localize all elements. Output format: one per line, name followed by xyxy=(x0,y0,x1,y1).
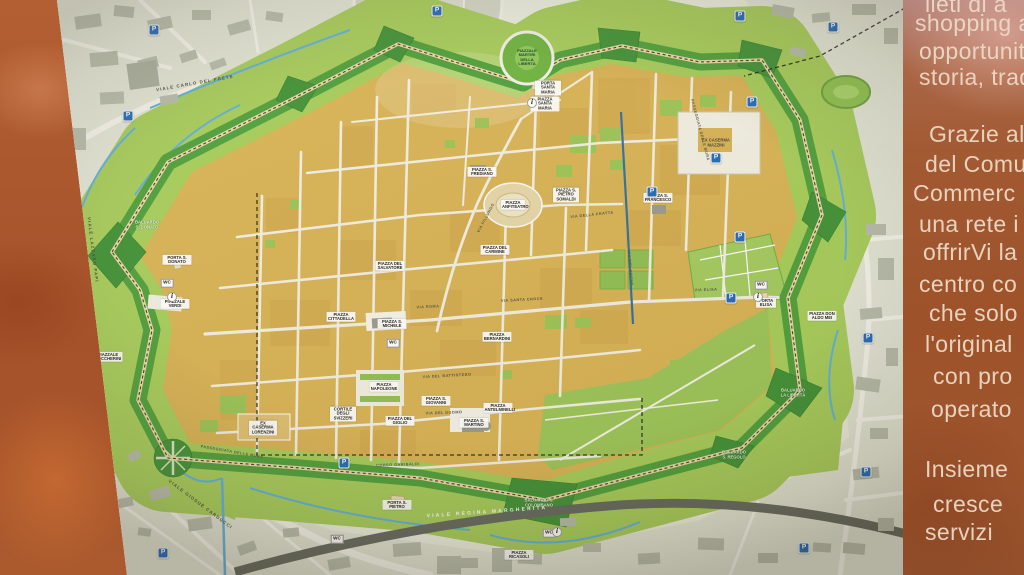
map-label: PIAZZA DEL SALVATORE xyxy=(376,261,405,271)
map-label: PIAZZA ANTELMINELLI xyxy=(484,403,513,413)
map-label: PIAZZA DON ALDO MEI xyxy=(808,311,837,321)
map-label: PIAZZA S. MICHELE xyxy=(378,319,407,329)
map-label: PIAZZA DEL CARMINE xyxy=(481,245,510,255)
map-label: PIAZZALE VERDI xyxy=(161,299,190,309)
parking-icon: P xyxy=(861,467,872,478)
map-label: EX CASERMA LORENZINI xyxy=(249,420,277,435)
panel-text-line: servizi xyxy=(925,519,993,546)
parking-icon: P xyxy=(123,111,134,122)
map-label: PORTA S. PIETRO xyxy=(383,500,412,510)
map-label: PIAZZA NAPOLEONE xyxy=(370,382,399,392)
parking-icon: P xyxy=(711,153,722,164)
panel-text-line: del Comun xyxy=(925,151,1024,178)
map-label: VIA DEL DUOMO xyxy=(425,410,462,416)
parking-icon: P xyxy=(735,232,746,243)
wc-icon: WC xyxy=(161,279,174,288)
map-label: PIAZZA ANFITEATRO xyxy=(501,200,525,210)
map-label: PIAZZA DEL GIGLIO xyxy=(386,416,415,426)
parking-icon: P xyxy=(799,543,810,554)
parking-icon: P xyxy=(726,293,737,304)
map-label: PIAZZA SANTA MARIA xyxy=(531,96,560,111)
map-label: PASSEGGIATA DELLE MURA xyxy=(690,99,711,162)
panel-text-line: una rete i xyxy=(919,211,1019,238)
parking-icon: P xyxy=(747,97,758,108)
map-label: PORTA ELISA xyxy=(756,298,776,308)
photo-of-city-map-sign: { "side_panel": { "lines": [ {"text":"li… xyxy=(0,0,1024,575)
map-label: BALUARDO S. REGOLO xyxy=(721,450,747,459)
map-label: VIALE LAZZARO PAPI xyxy=(86,217,99,283)
parking-icon: P xyxy=(158,548,169,559)
parking-icon: P xyxy=(149,25,160,36)
map-label: VIALE REGINA MARGHERITA xyxy=(427,506,548,520)
map-label: PIAZZA S. GIOVANNI xyxy=(422,396,451,406)
map-label: PIAZZALE MARTIRI DELLA LIBERTÀ xyxy=(514,49,541,67)
map-label: PIAZZA S. MARTINO xyxy=(460,418,489,428)
city-map-panel: PIAZZA ANFITEATROPIAZZA S. FREDIANOPIAZZ… xyxy=(0,0,1024,575)
map-label: PIAZZALE BOCCHERINI xyxy=(94,352,123,362)
map-label: CORTILE DEGLI SVIZZERI xyxy=(330,406,356,421)
parking-icon: P xyxy=(647,187,658,198)
panel-text-line: Grazie al so xyxy=(929,121,1024,148)
map-label: PORTA SANTA MARIA xyxy=(535,80,561,95)
panel-text-line: opportunità xyxy=(919,38,1024,65)
map-label: VIA ELISA xyxy=(694,287,717,292)
panel-text-line: shopping all'i xyxy=(915,10,1024,37)
parking-icon: P xyxy=(828,22,839,33)
info-icon: i xyxy=(753,292,763,302)
map-label: BALUARDO S. DONATO xyxy=(134,220,160,229)
info-icon: i xyxy=(167,292,177,302)
parking-icon: P xyxy=(432,6,443,17)
map-label: VIA DELLA FRATTA xyxy=(570,211,614,220)
map-label: VIA DEL FOSSO xyxy=(626,250,633,286)
map-label: PIAZZA BERNARDINI xyxy=(483,332,512,342)
map-label: PIAZZA S. FREDIANO xyxy=(468,167,497,177)
map-label: PIAZZA RICASOLI xyxy=(505,550,534,560)
parking-icon: P xyxy=(339,458,350,469)
panel-text-line: operato xyxy=(931,396,1012,423)
parking-icon: P xyxy=(735,11,746,22)
map-label: VIALE CARLO DEL PRETE xyxy=(156,75,234,94)
map-label: CORSO GARIBALDI xyxy=(376,462,420,468)
panel-text-line: storia, tradiz xyxy=(919,64,1024,91)
panel-text-line: centro co xyxy=(919,271,1017,298)
panel-text-line: l'original xyxy=(925,331,1013,358)
map-annotations-layer: PIAZZA ANFITEATROPIAZZA S. FREDIANOPIAZZ… xyxy=(0,0,1024,575)
map-label: PORTA S. DONATO xyxy=(163,255,192,265)
terracotta-text-panel: lieti di ashopping all'iopportunitàstori… xyxy=(903,0,1024,575)
wc-icon: WC xyxy=(755,281,768,290)
panel-text-line: con pro xyxy=(933,363,1013,390)
map-label: BALUARDO S. COLOMBANO xyxy=(524,498,554,507)
panel-text-line: che solo xyxy=(929,300,1018,327)
map-label: VIA ROMA xyxy=(416,304,439,309)
map-label: EX CASERMA MAZZINI xyxy=(701,138,731,147)
wc-icon: WC xyxy=(387,339,400,348)
wc-icon: WC xyxy=(331,535,344,544)
map-label: VIA SANTA CROCE xyxy=(501,297,543,303)
panel-text-line: Insieme xyxy=(925,456,1008,483)
wc-icon: WC xyxy=(543,529,556,538)
map-label: PASSEGGIATA DELLE MURA xyxy=(200,444,263,459)
panel-text-line: offrirVi la xyxy=(923,239,1017,266)
map-label: VIALE GIOSUÈ CARDUCCI xyxy=(167,479,233,530)
parking-icon: P xyxy=(863,333,874,344)
map-label: PIAZZA CITTADELLA xyxy=(327,312,356,322)
map-label: VIA FILLUNGO xyxy=(476,203,495,234)
info-icon: i xyxy=(527,98,537,108)
panel-text-line: Commerc xyxy=(913,180,1015,207)
map-label: PIAZZA S. FRANCESCO xyxy=(644,193,673,203)
info-icon: i xyxy=(552,527,562,537)
map-label: BALUARDO LA LIBERTÀ xyxy=(780,388,806,397)
map-label: VIA DEL BATTISTERO xyxy=(423,373,472,380)
map-label: PIAZZA S. PIETRO SOMALDI xyxy=(553,187,579,202)
panel-text-line: cresce xyxy=(933,491,1003,518)
